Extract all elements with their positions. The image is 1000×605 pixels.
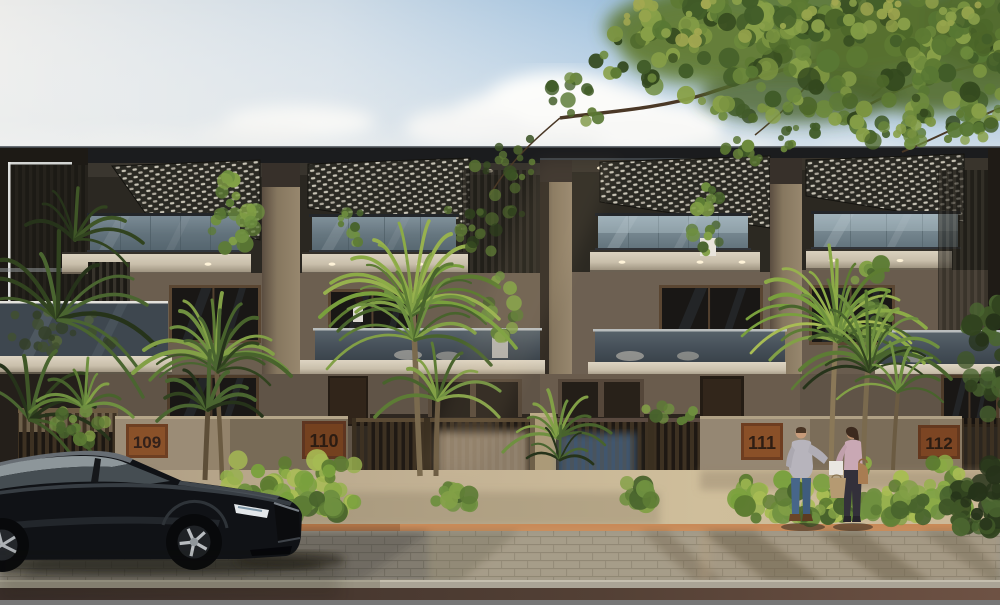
svg-text:111: 111: [748, 433, 776, 453]
svg-text:110: 110: [309, 431, 338, 451]
svg-text:109: 109: [133, 433, 161, 452]
svg-text:112: 112: [925, 434, 952, 453]
